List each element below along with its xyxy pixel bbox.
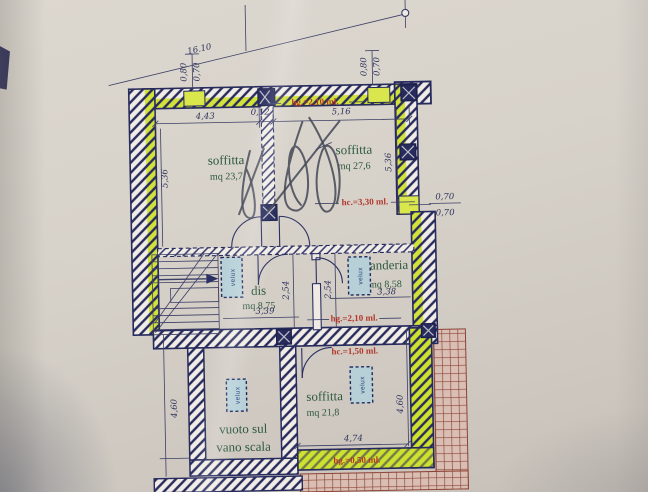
annotation-hc-mid: hc.=1,50 ml. bbox=[331, 346, 378, 357]
dim-step-070b: 0,70 bbox=[436, 208, 456, 218]
stairs-direction-arrow bbox=[206, 274, 218, 284]
wall-top bbox=[143, 81, 431, 109]
room-soffitta-ne: soffitta mq 27,6 bbox=[335, 142, 372, 173]
dim-win-right-070: 0,70 bbox=[372, 56, 382, 76]
annotation-hg-top: hg.=2,10 ml. bbox=[291, 96, 338, 107]
velux-label: velux bbox=[234, 386, 241, 404]
room-label-vuoto-1: vuoto sul bbox=[219, 421, 268, 437]
room-soffitta-nw: soffitta mq 23,7 bbox=[208, 152, 245, 183]
room-vuoto-scala: vuoto sul vano scala bbox=[216, 421, 271, 455]
velux-vuoto: velux bbox=[226, 379, 247, 411]
room-area-dis: mq 8,75 bbox=[242, 300, 275, 312]
dim-516: 5,16 bbox=[332, 107, 352, 117]
room-label-soffitta-nw: soffitta bbox=[208, 152, 245, 168]
annotation-hg-bottom: hg.=0,50 ml. bbox=[333, 454, 380, 465]
dim-right-460: 4,60 bbox=[396, 394, 406, 415]
dim-012: 0,12 bbox=[251, 108, 270, 118]
dim-win-right-080: 0,80 bbox=[359, 57, 369, 77]
roof-grid-bottom bbox=[300, 471, 468, 492]
room-soffitta-s: soffitta mq 21,8 bbox=[306, 388, 343, 419]
room-label-dis: dis bbox=[251, 283, 266, 298]
dim-win-left-080: 0,80 bbox=[179, 62, 189, 82]
dim-254-a: 2,54 bbox=[281, 281, 291, 301]
dim-left-460: 4,60 bbox=[170, 398, 180, 419]
paper-edge-mark bbox=[0, 44, 11, 90]
velux-soffitta-s: velux bbox=[350, 367, 373, 403]
wall-left bbox=[129, 89, 160, 335]
wall-central-divider bbox=[261, 105, 275, 205]
dim-443: 4,43 bbox=[195, 112, 215, 122]
room-label-soffitta-ne: soffitta bbox=[335, 142, 372, 158]
velux-label: velux bbox=[359, 376, 366, 394]
annotation-hc-top: hc.=3,30 ml. bbox=[341, 196, 388, 207]
dim-right-536: 5,36 bbox=[384, 152, 394, 172]
room-dis: dis mq 8,75 bbox=[242, 282, 275, 312]
dim-overall-width: 16.10 bbox=[187, 42, 213, 57]
dimension-end-marker bbox=[402, 9, 409, 16]
velux-label: velux bbox=[357, 267, 364, 285]
velux-label: velux bbox=[230, 268, 237, 286]
roof-grid-right bbox=[433, 329, 468, 490]
room-label-soffitta-s: soffitta bbox=[306, 388, 343, 404]
wall-right-lower bbox=[411, 211, 437, 329]
dim-win-left-070: 0,70 bbox=[192, 62, 202, 82]
dim-left-536: 5,36 bbox=[160, 168, 170, 188]
velux-dis: velux bbox=[221, 257, 243, 297]
room-area-soffitta-ne: mq 27,6 bbox=[338, 161, 371, 173]
velux-lavanderia: velux bbox=[348, 257, 371, 295]
room-label-vuoto-2: vano scala bbox=[216, 439, 271, 455]
window-opening-right bbox=[368, 87, 390, 102]
dim-step-070a: 0,70 bbox=[435, 192, 455, 202]
annotation-hg-mid: hg.=2,10 ml. bbox=[330, 313, 377, 324]
dim-474: 4,74 bbox=[343, 434, 363, 444]
room-area-soffitta-s: mq 21,8 bbox=[306, 407, 339, 419]
staircase bbox=[152, 254, 220, 335]
floor-plan-drawing: 16.10 bbox=[0, 0, 648, 492]
wall-bottom-strip bbox=[154, 476, 302, 492]
room-area-lavanderia: mq 8,58 bbox=[369, 279, 402, 291]
room-area-soffitta-nw: mq 23,7 bbox=[210, 171, 243, 183]
floor-plan-photo: 16.10 bbox=[0, 0, 648, 492]
window-opening-left bbox=[184, 91, 205, 106]
dim-254-b: 2,54 bbox=[323, 280, 333, 300]
